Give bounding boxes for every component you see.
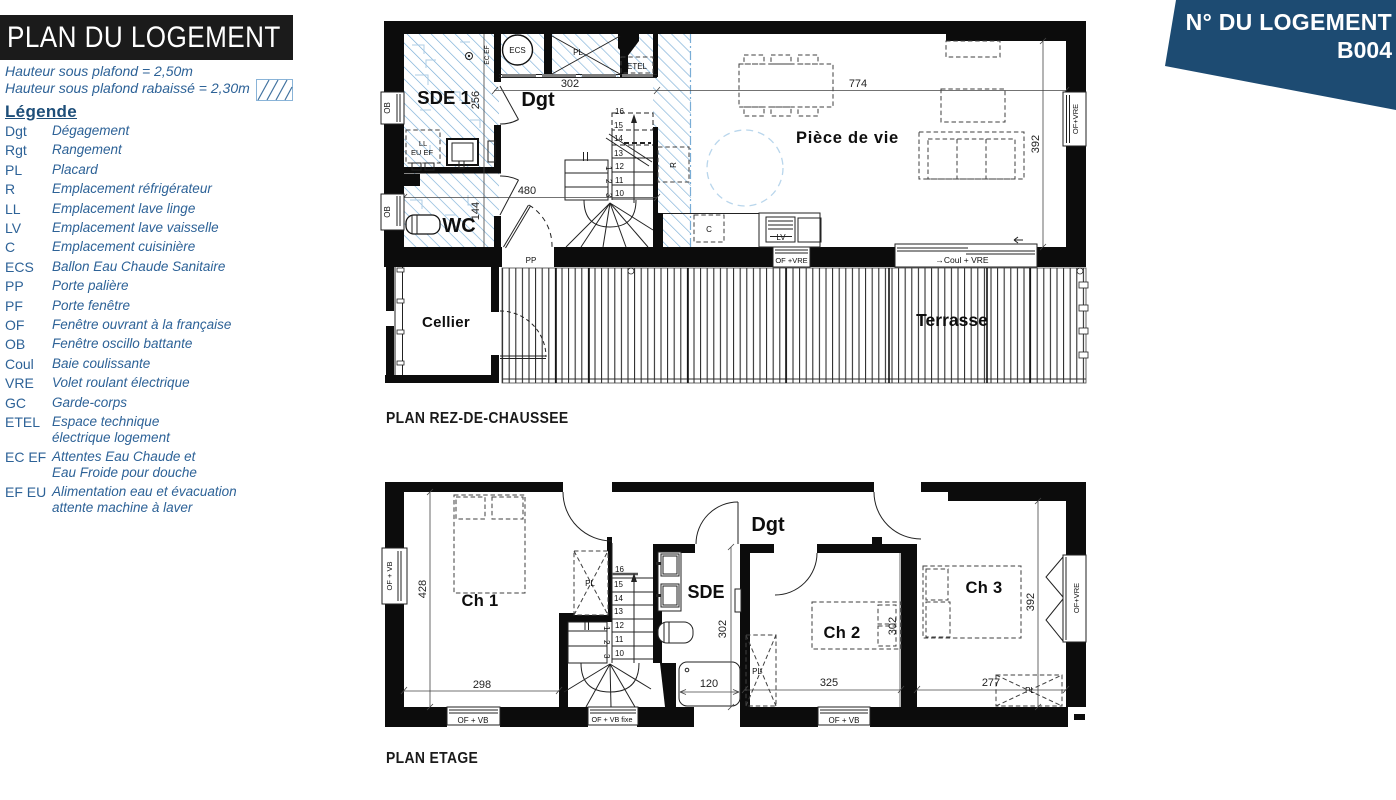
svg-text:3: 3 bbox=[602, 654, 611, 659]
svg-text:Ch 1: Ch 1 bbox=[462, 592, 499, 610]
svg-text:OF + VB: OF + VB bbox=[458, 716, 489, 725]
svg-text:Ch 2: Ch 2 bbox=[824, 624, 861, 642]
svg-text:SDE 1: SDE 1 bbox=[417, 87, 470, 108]
svg-text:256: 256 bbox=[470, 91, 482, 109]
svg-text:480: 480 bbox=[518, 185, 536, 197]
svg-text:Cellier: Cellier bbox=[422, 314, 470, 331]
svg-text:PL: PL bbox=[573, 48, 583, 57]
svg-text:OF + VB: OF + VB bbox=[385, 562, 394, 591]
svg-text:OF+VRE: OF+VRE bbox=[1072, 583, 1081, 613]
svg-text:13: 13 bbox=[614, 149, 623, 158]
svg-text:SDE: SDE bbox=[687, 582, 724, 602]
svg-text:14: 14 bbox=[614, 594, 623, 603]
svg-text:1: 1 bbox=[604, 166, 613, 171]
svg-text:12: 12 bbox=[615, 162, 624, 171]
svg-text:ETEL: ETEL bbox=[627, 62, 648, 71]
svg-text:774: 774 bbox=[849, 78, 867, 90]
svg-text:ECS: ECS bbox=[509, 46, 525, 55]
svg-text:R: R bbox=[669, 162, 678, 168]
svg-text:EC EF: EC EF bbox=[484, 45, 491, 64]
svg-text:OF + VB fixe: OF + VB fixe bbox=[592, 715, 633, 724]
svg-text:→Coul + VRE: →Coul + VRE bbox=[935, 255, 988, 265]
svg-text:277: 277 bbox=[982, 677, 1000, 689]
svg-text:302: 302 bbox=[561, 78, 579, 90]
svg-text:428: 428 bbox=[417, 580, 429, 598]
svg-text:PL: PL bbox=[585, 579, 595, 588]
svg-text:15: 15 bbox=[614, 580, 623, 589]
svg-text:1: 1 bbox=[602, 626, 611, 631]
svg-text:Dgt: Dgt bbox=[751, 514, 785, 536]
svg-text:15: 15 bbox=[614, 121, 623, 130]
svg-text:Pièce de vie: Pièce de vie bbox=[796, 129, 899, 147]
svg-text:OF + VB: OF + VB bbox=[829, 716, 860, 725]
svg-text:LV: LV bbox=[776, 233, 786, 242]
svg-text:392: 392 bbox=[1030, 135, 1042, 153]
svg-text:120: 120 bbox=[700, 678, 718, 690]
svg-text:325: 325 bbox=[820, 677, 838, 689]
svg-text:13: 13 bbox=[614, 607, 623, 616]
svg-text:2: 2 bbox=[604, 179, 613, 184]
svg-text:OB: OB bbox=[383, 206, 392, 218]
svg-text:302: 302 bbox=[717, 620, 729, 638]
svg-text:N° DU LOGEMENT: N° DU LOGEMENT bbox=[1186, 9, 1392, 35]
svg-text:10: 10 bbox=[615, 189, 624, 198]
svg-text:LL: LL bbox=[419, 139, 427, 148]
svg-text:OF +VRE: OF +VRE bbox=[775, 256, 807, 265]
svg-text:392: 392 bbox=[1025, 593, 1037, 611]
svg-text:12: 12 bbox=[615, 621, 624, 630]
svg-text:B004: B004 bbox=[1337, 37, 1392, 63]
svg-text:PL: PL bbox=[1025, 686, 1035, 695]
svg-text:10: 10 bbox=[615, 649, 624, 658]
svg-text:Ch 3: Ch 3 bbox=[966, 579, 1003, 597]
svg-text:298: 298 bbox=[473, 679, 491, 691]
svg-text:C: C bbox=[706, 225, 712, 234]
svg-text:16: 16 bbox=[615, 565, 624, 574]
svg-text:Dgt: Dgt bbox=[521, 89, 555, 111]
svg-text:PL: PL bbox=[752, 667, 762, 676]
svg-text:PP: PP bbox=[526, 256, 537, 265]
svg-text:OB: OB bbox=[383, 102, 392, 114]
svg-text:OF+VRE: OF+VRE bbox=[1071, 104, 1080, 134]
svg-text:Terrasse: Terrasse bbox=[916, 310, 988, 330]
svg-text:11: 11 bbox=[615, 635, 624, 644]
svg-text:EU EF: EU EF bbox=[411, 148, 434, 157]
svg-text:WC: WC bbox=[442, 215, 475, 237]
svg-text:2: 2 bbox=[602, 640, 611, 645]
svg-text:16: 16 bbox=[615, 107, 624, 116]
svg-text:14: 14 bbox=[614, 134, 623, 143]
svg-text:11: 11 bbox=[615, 176, 624, 185]
svg-text:302: 302 bbox=[887, 617, 899, 635]
